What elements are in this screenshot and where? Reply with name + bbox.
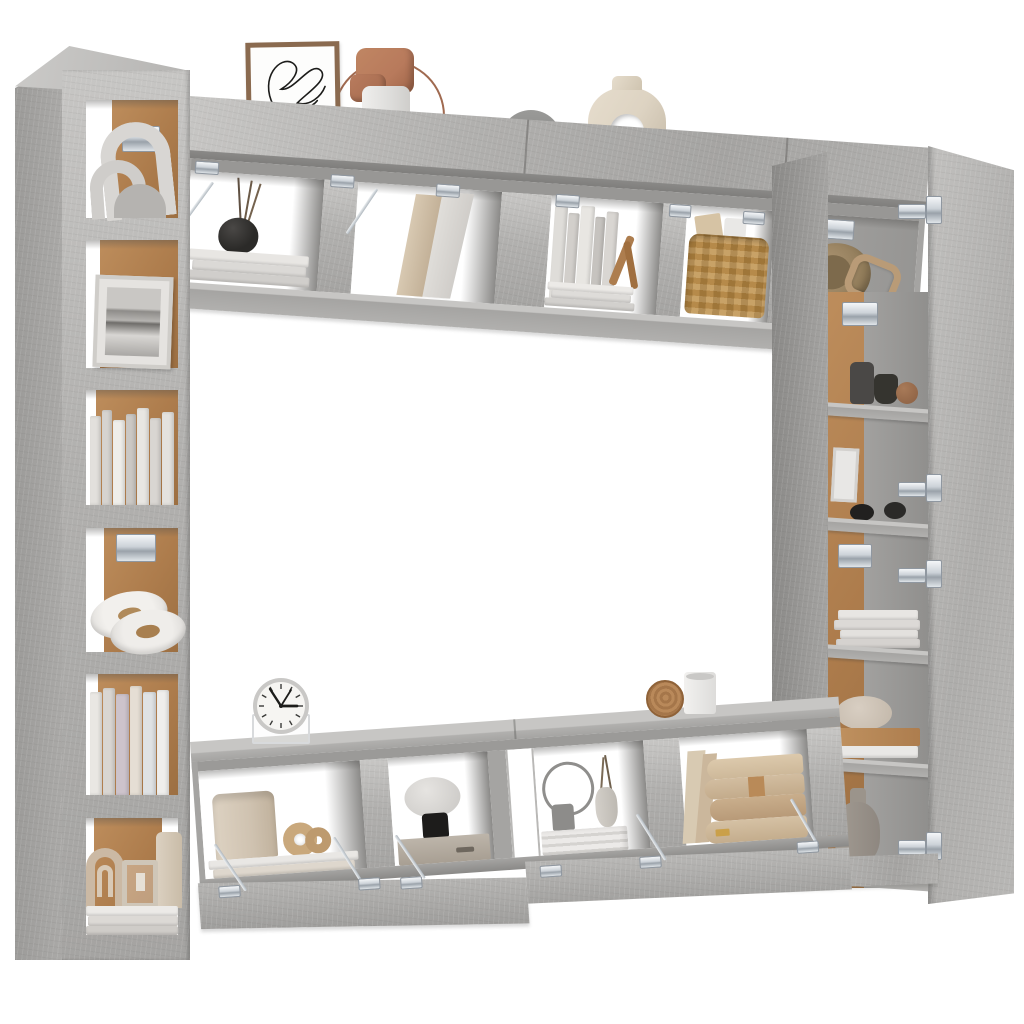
photo-print — [105, 287, 161, 357]
door-hinge-bracket — [358, 877, 381, 891]
bench-compartment-3 — [533, 740, 650, 855]
twig — [604, 755, 612, 791]
clock-face — [251, 676, 311, 736]
white-tray — [834, 746, 918, 758]
hinge-plate — [926, 560, 942, 588]
door-hinge — [898, 474, 944, 504]
lid-stay-bracket — [669, 204, 692, 219]
lid-stay-bracket — [195, 161, 220, 176]
cup-rim — [686, 673, 714, 680]
black-pebble — [884, 502, 906, 519]
tray-stack — [86, 926, 178, 935]
top-divider-2 — [494, 192, 552, 307]
book-spine — [102, 410, 112, 505]
stone-pebble — [836, 696, 892, 730]
left-compartment-4 — [86, 528, 178, 652]
wicker-basket — [684, 233, 769, 318]
hinge-plate — [926, 474, 942, 502]
knot-sculpture-loop — [304, 826, 332, 854]
book-gold-label — [715, 829, 729, 837]
book-band — [748, 776, 765, 797]
book-spine — [143, 692, 156, 795]
ceiling-shadow — [86, 100, 178, 109]
top-compartment-3 — [544, 195, 664, 315]
ceiling-shadow — [86, 390, 178, 399]
door-hinge — [898, 196, 944, 226]
wooden-board — [832, 728, 920, 746]
framed-photo — [92, 275, 173, 370]
arch-rainbow-sculpture — [86, 848, 124, 908]
door-hinge-bracket — [539, 864, 562, 878]
black-mini-bowl — [874, 374, 898, 404]
clay-ball — [896, 382, 918, 404]
book-spine — [113, 420, 125, 505]
door-hinge-bracket — [400, 876, 423, 890]
left-side-panel — [15, 66, 62, 960]
hinge-arm — [898, 482, 926, 497]
dish-center — [135, 623, 161, 639]
bud-vase — [594, 786, 619, 827]
lantern-candle-holder — [122, 860, 158, 908]
book-stack-slab — [840, 630, 918, 639]
book-spine — [90, 416, 101, 505]
ceiling-shadow — [86, 240, 178, 249]
small-gray-jar — [551, 803, 575, 830]
door-hinge-bracket — [639, 855, 662, 869]
left-compartment-6 — [86, 818, 178, 935]
desk-clock — [248, 674, 314, 746]
book-spine — [126, 414, 136, 505]
wooden-disc — [646, 680, 684, 718]
book-spine — [116, 694, 129, 795]
left-compartment-2 — [86, 240, 178, 368]
bench-compartment-4 — [679, 729, 814, 846]
lantern-candle — [136, 873, 145, 891]
lid-stay-bracket — [436, 183, 461, 198]
product-photo-stage — [0, 0, 1024, 1024]
dark-mini-vase — [850, 362, 874, 404]
lid-stay-bracket — [742, 211, 765, 226]
book-stack-slab — [834, 620, 920, 630]
arch-rainbow-inner — [97, 865, 113, 897]
door-hinge-bracket — [796, 840, 819, 854]
cylinder-vessel — [212, 790, 278, 860]
book-spine — [90, 692, 102, 795]
wall-bracket — [116, 534, 156, 562]
hinge-plate — [926, 196, 942, 224]
top-compartment-2 — [351, 182, 502, 304]
top-compartment-1 — [183, 170, 324, 291]
left-compartment-3 — [86, 390, 178, 505]
book-spine — [157, 690, 169, 795]
door-hinge-bracket — [218, 885, 241, 899]
book-spine — [150, 418, 161, 505]
book-spine — [137, 408, 149, 505]
wall-bracket — [838, 544, 872, 568]
hinge-arm — [898, 204, 926, 219]
book-spine — [130, 686, 142, 795]
white-cup — [684, 672, 716, 714]
hinge-arm — [898, 568, 926, 583]
right-cabinet-open-door — [928, 146, 1014, 904]
tray-stack — [88, 916, 178, 926]
book-spine — [162, 412, 174, 505]
hinge-arm — [898, 840, 926, 855]
tray-stack — [86, 906, 178, 916]
book-spine — [103, 688, 115, 795]
crate-handle-slot — [456, 846, 474, 852]
pillar-candle — [156, 832, 182, 908]
lid-stay-bracket — [330, 174, 355, 189]
ceiling-shadow — [86, 674, 178, 683]
lid-stay-bracket — [555, 194, 580, 209]
left-compartment-1 — [86, 100, 178, 218]
book-stack-slab — [838, 610, 918, 620]
basket-weave-overlay — [684, 233, 769, 318]
left-compartment-5 — [86, 674, 178, 795]
black-diffuser-vase — [217, 216, 259, 255]
wall-bracket — [842, 302, 878, 326]
ceiling-shadow — [86, 818, 178, 827]
donut-vase-neck — [612, 76, 642, 90]
door-hinge — [898, 560, 944, 590]
small-white-frame — [831, 447, 860, 502]
